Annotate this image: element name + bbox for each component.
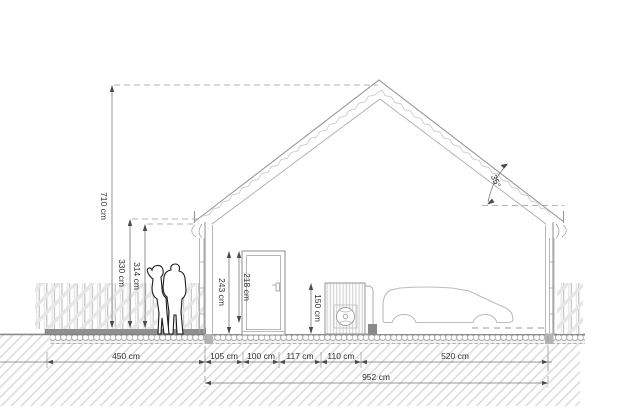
ground-hatch xyxy=(0,335,580,406)
label-heat-pump-width: 110 cm xyxy=(327,351,354,361)
label-heat-pump-height: 150 cm xyxy=(313,294,323,322)
house-elevation-svg: 710 cm 330 cm 314 cm 243 cm 218 cm xyxy=(0,0,618,412)
ground-section xyxy=(0,334,585,406)
label-eave-underside-height: 314 cm xyxy=(132,262,142,290)
elevation-drawing-canvas: 710 cm 330 cm 314 cm 243 cm 218 cm xyxy=(0,0,618,412)
label-door-leaf-height: 218 cm xyxy=(242,273,252,301)
label-door-width: 100 cm xyxy=(247,351,275,361)
gravel-strip xyxy=(50,335,585,344)
right-fence xyxy=(557,283,583,334)
heat-pump-unit xyxy=(325,283,377,334)
label-door-frame-height: 243 cm xyxy=(217,278,227,306)
label-right-section-width: 520 cm xyxy=(441,351,469,361)
label-terrace-width: 450 cm xyxy=(112,351,140,361)
label-ridge-height: 710 cm xyxy=(99,192,109,220)
base-block xyxy=(368,324,377,334)
label-door-to-heat-pump: 117 cm xyxy=(286,351,313,361)
label-house-total-width: 952 cm xyxy=(362,372,390,382)
left-foundation xyxy=(205,334,214,344)
label-wall-to-door: 105 cm xyxy=(210,351,238,361)
right-foundation xyxy=(545,334,554,344)
label-eave-height: 330 cm xyxy=(117,259,127,287)
